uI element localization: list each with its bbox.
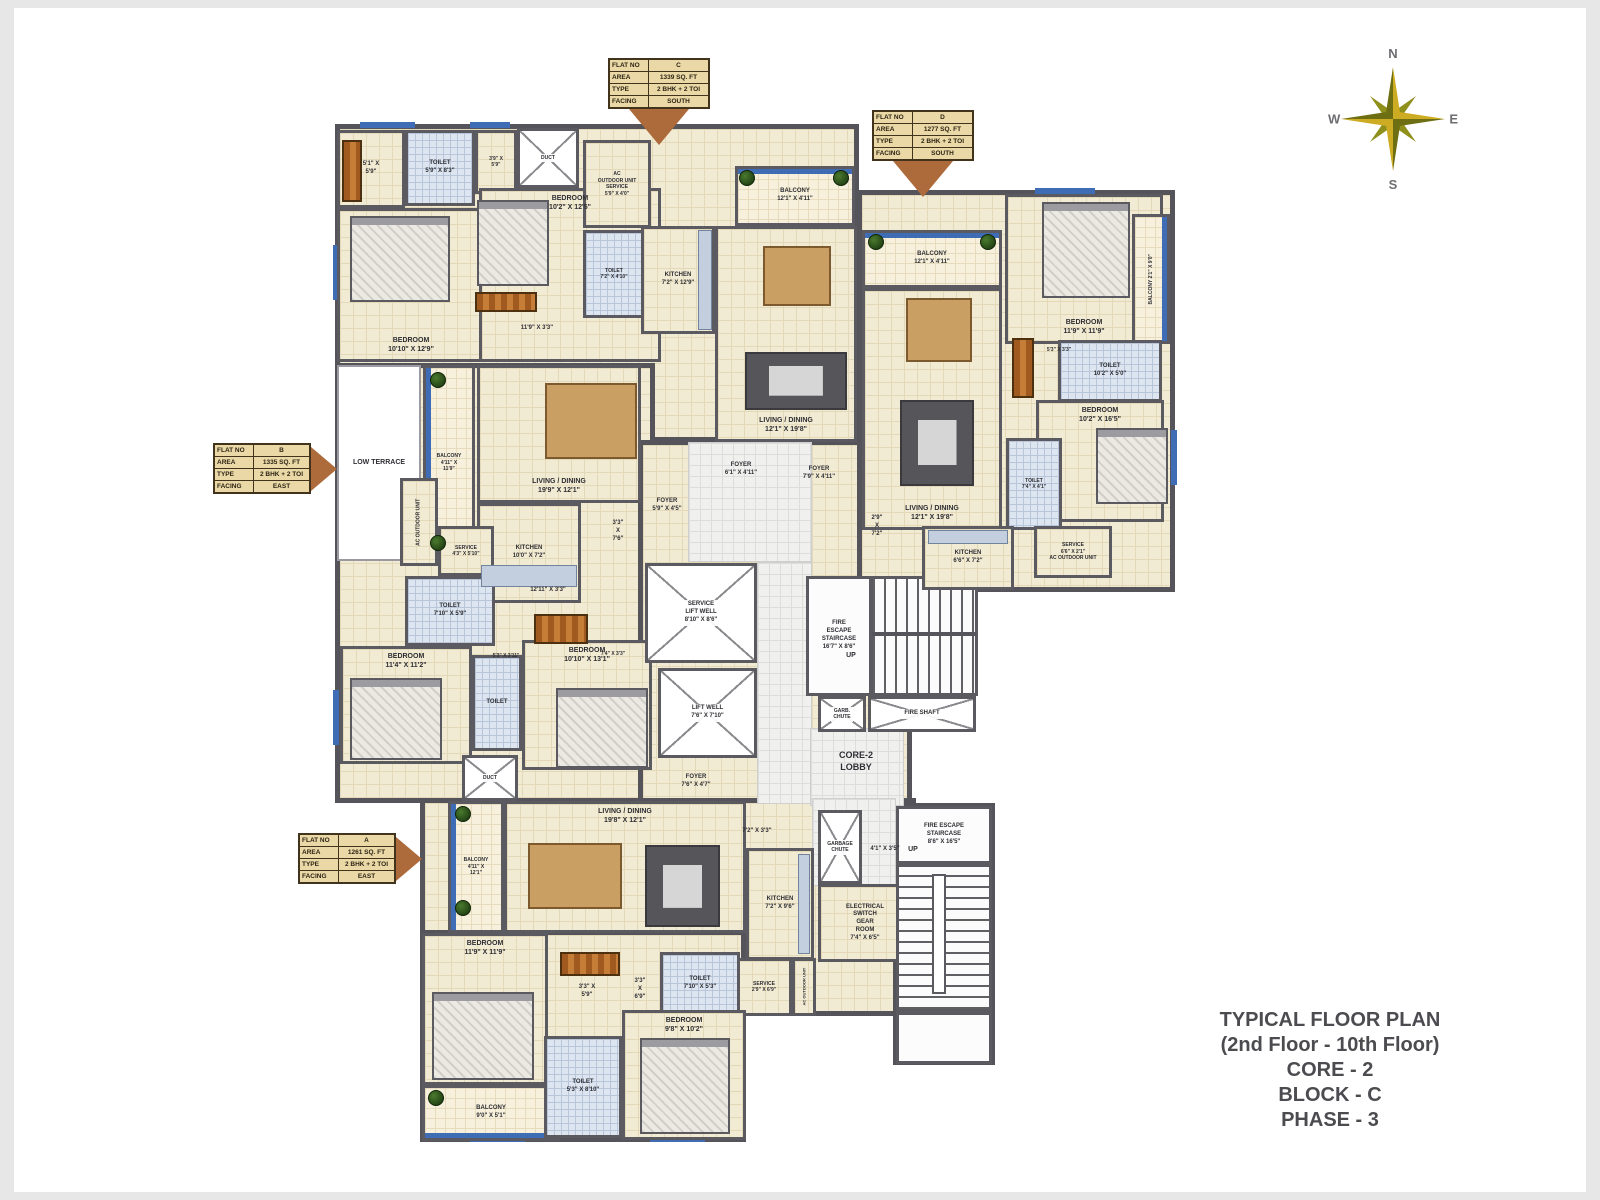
flat-info-value: 2 BHK + 2 TOI — [254, 469, 309, 480]
flat-info-value: 2 BHK + 2 TOI — [339, 859, 394, 870]
flat-info-key: FACING — [215, 481, 254, 492]
flat-info-key: FLAT NO — [300, 835, 339, 846]
flat-info-value: 1277 SQ. FT — [913, 124, 972, 135]
flat-info-value: EAST — [254, 481, 309, 492]
flat-info-key: AREA — [610, 72, 649, 83]
flat-info-key: FLAT NO — [874, 112, 913, 123]
flat-info-value: D — [913, 112, 972, 123]
flat-info-value: B — [254, 445, 309, 456]
flat-info-key: FLAT NO — [610, 60, 649, 71]
flat-pointer-arrow-icon — [396, 837, 422, 881]
page-edge-bottom — [0, 1192, 1600, 1200]
flat-info-box-b: FLAT NOBAREA1335 SQ. FTTYPE2 BHK + 2 TOI… — [213, 443, 311, 494]
flat-info-key: TYPE — [300, 859, 339, 870]
flat-info-boxes: FLAT NOCAREA1339 SQ. FTTYPE2 BHK + 2 TOI… — [0, 0, 1600, 1200]
flat-info-value: EAST — [339, 871, 394, 882]
flat-info-value: SOUTH — [649, 96, 708, 107]
page-edge-left — [0, 0, 14, 1200]
flat-pointer-arrow-icon — [893, 161, 953, 197]
flat-info-key: FACING — [300, 871, 339, 882]
flat-info-key: TYPE — [610, 84, 649, 95]
flat-info-key: FLAT NO — [215, 445, 254, 456]
flat-info-box-a: FLAT NOAAREA1261 SQ. FTTYPE2 BHK + 2 TOI… — [298, 833, 396, 884]
flat-info-key: FACING — [874, 148, 913, 159]
flat-info-box-d: FLAT NODAREA1277 SQ. FTTYPE2 BHK + 2 TOI… — [872, 110, 974, 197]
flat-info-key: TYPE — [215, 469, 254, 480]
flat-pointer-arrow-icon — [311, 447, 337, 491]
flat-info-value: A — [339, 835, 394, 846]
page-edge-right — [1586, 0, 1600, 1200]
flat-info-value: 2 BHK + 2 TOI — [649, 84, 708, 95]
flat-info-value: SOUTH — [913, 148, 972, 159]
flat-info-value: 1335 SQ. FT — [254, 457, 309, 468]
flat-info-value: 1339 SQ. FT — [649, 72, 708, 83]
page-edge-top — [0, 0, 1600, 8]
flat-pointer-arrow-icon — [629, 109, 689, 145]
flat-info-key: AREA — [874, 124, 913, 135]
flat-info-key: FACING — [610, 96, 649, 107]
flat-info-value: 2 BHK + 2 TOI — [913, 136, 972, 147]
flat-info-key: TYPE — [874, 136, 913, 147]
flat-info-key: AREA — [215, 457, 254, 468]
flat-info-value: 1261 SQ. FT — [339, 847, 394, 858]
flat-info-key: AREA — [300, 847, 339, 858]
flat-info-box-c: FLAT NOCAREA1339 SQ. FTTYPE2 BHK + 2 TOI… — [608, 58, 710, 145]
flat-info-value: C — [649, 60, 708, 71]
